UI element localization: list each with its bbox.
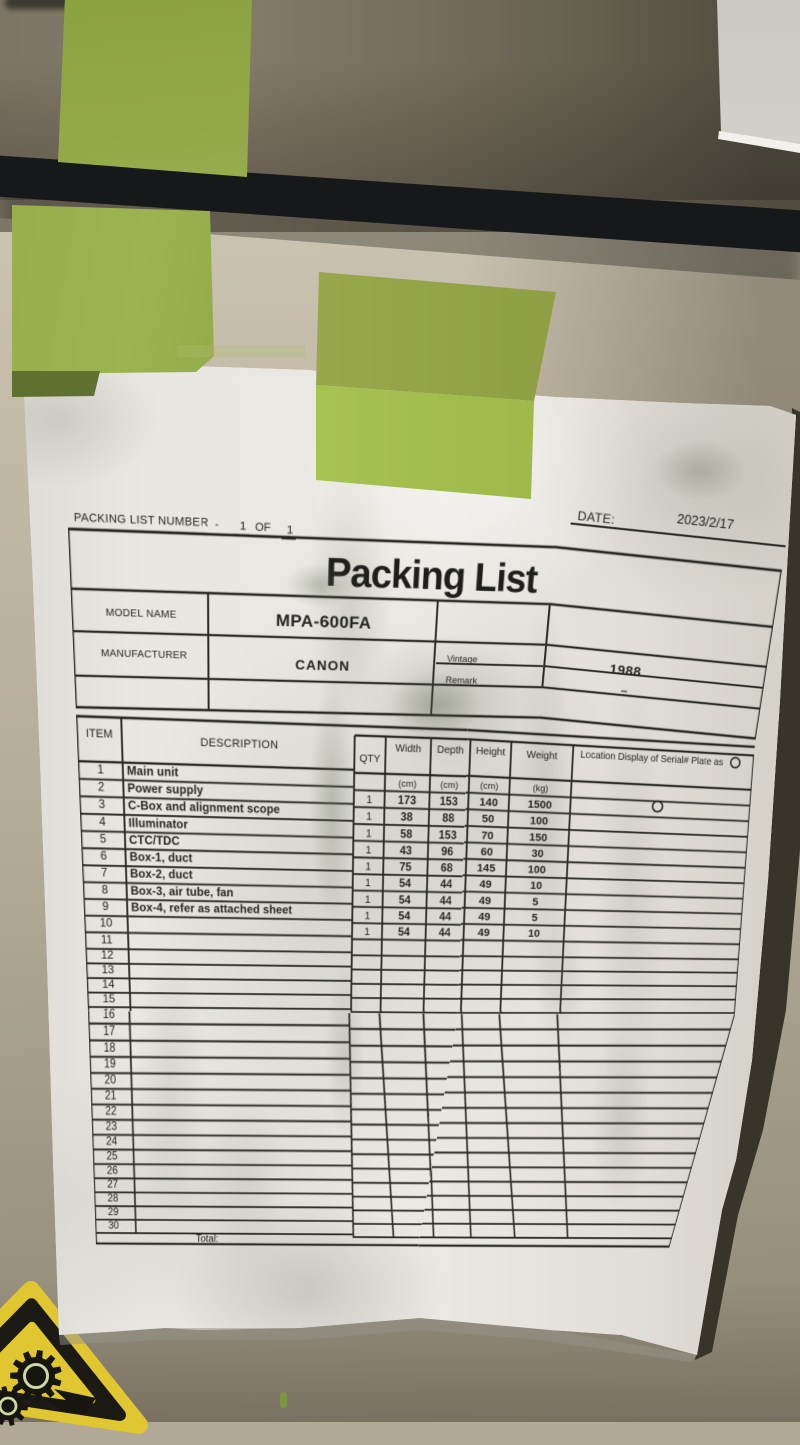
svg-text:CANON: CANON (295, 658, 350, 675)
svg-text:8: 8 (101, 882, 108, 896)
svg-text:5: 5 (532, 896, 539, 908)
svg-text:7: 7 (101, 866, 108, 880)
svg-text:Vintage: Vintage (447, 654, 478, 665)
svg-text:-: - (215, 517, 219, 531)
svg-text:96: 96 (441, 844, 454, 858)
svg-text:88: 88 (442, 811, 455, 825)
svg-text:173: 173 (398, 793, 417, 807)
svg-text:Box-1, duct: Box-1, duct (129, 850, 192, 865)
svg-text:60: 60 (480, 846, 493, 859)
svg-text:1: 1 (240, 519, 247, 533)
svg-text:150: 150 (529, 831, 548, 844)
svg-text:23: 23 (105, 1120, 117, 1133)
svg-text:4: 4 (99, 814, 106, 828)
svg-text:13: 13 (101, 963, 114, 976)
svg-text:11: 11 (101, 932, 113, 945)
svg-text:QTY: QTY (359, 752, 381, 765)
svg-text:MPA-600FA: MPA-600FA (276, 611, 372, 633)
svg-text:MANUFACTURER: MANUFACTURER (101, 648, 188, 661)
svg-text:Height: Height (476, 744, 506, 758)
svg-text:(cm): (cm) (398, 779, 417, 790)
svg-text:Packing List: Packing List (325, 549, 540, 601)
svg-text:140: 140 (479, 796, 498, 810)
svg-text:CTC/TDC: CTC/TDC (129, 833, 180, 848)
svg-text:10: 10 (530, 880, 543, 893)
svg-text:1988: 1988 (609, 663, 642, 680)
svg-text:9: 9 (102, 899, 109, 912)
svg-text:1: 1 (365, 893, 371, 905)
svg-text:Remark: Remark (445, 676, 478, 687)
svg-text:30: 30 (108, 1220, 119, 1232)
svg-text:54: 54 (399, 876, 412, 889)
svg-text:20: 20 (104, 1073, 116, 1087)
svg-text:17: 17 (103, 1023, 115, 1038)
svg-text:6: 6 (100, 849, 107, 863)
svg-text:2: 2 (98, 779, 105, 793)
svg-text:(cm): (cm) (440, 780, 458, 791)
svg-text:10: 10 (100, 916, 113, 929)
svg-text:3: 3 (98, 797, 105, 811)
svg-text:5: 5 (100, 831, 107, 845)
svg-text:19: 19 (104, 1057, 116, 1071)
svg-text:58: 58 (400, 827, 413, 841)
svg-text:27: 27 (107, 1178, 118, 1190)
svg-text:ITEM: ITEM (86, 726, 113, 740)
svg-text:DESCRIPTION: DESCRIPTION (200, 735, 278, 751)
svg-text:1: 1 (365, 843, 371, 856)
svg-text:Width: Width (395, 742, 421, 755)
svg-text:54: 54 (399, 893, 412, 906)
svg-text:1: 1 (366, 810, 372, 823)
svg-text:29: 29 (108, 1206, 119, 1218)
svg-text:44: 44 (440, 894, 453, 907)
svg-text:Main unit: Main unit (127, 763, 179, 779)
svg-text:44: 44 (439, 910, 451, 923)
svg-text:Depth: Depth (437, 743, 464, 756)
svg-text:43: 43 (400, 843, 413, 857)
svg-text:50: 50 (482, 813, 495, 826)
svg-text:49: 49 (477, 927, 490, 939)
svg-text:5: 5 (531, 912, 538, 924)
svg-text:22: 22 (105, 1104, 117, 1117)
svg-text:Box-3, air tube, fan: Box-3, air tube, fan (130, 884, 233, 899)
svg-text:54: 54 (398, 909, 410, 922)
svg-text:18: 18 (103, 1040, 115, 1054)
svg-text:1: 1 (364, 909, 370, 921)
svg-text:24: 24 (106, 1135, 117, 1148)
svg-text:26: 26 (107, 1164, 118, 1176)
svg-text:1: 1 (97, 762, 104, 776)
svg-text:PACKING LIST NUMBER: PACKING LIST NUMBER (74, 510, 209, 529)
svg-text:Weight: Weight (526, 748, 558, 762)
svg-text:30: 30 (531, 847, 544, 860)
svg-text:70: 70 (481, 829, 494, 842)
svg-text:1: 1 (366, 827, 372, 840)
svg-text:OF: OF (255, 520, 271, 534)
svg-text:153: 153 (440, 794, 459, 808)
svg-text:49: 49 (478, 911, 491, 924)
svg-text:Power supply: Power supply (127, 781, 203, 797)
svg-text:(cm): (cm) (480, 780, 499, 792)
svg-text:12: 12 (101, 948, 114, 961)
svg-text:44: 44 (440, 877, 453, 890)
svg-text:68: 68 (441, 861, 454, 874)
svg-text:1: 1 (287, 523, 294, 537)
svg-text:10: 10 (528, 928, 540, 940)
svg-text:2023/2/17: 2023/2/17 (676, 512, 735, 532)
svg-text:(kg): (kg) (533, 782, 549, 794)
svg-text:153: 153 (439, 828, 458, 842)
svg-text:1500: 1500 (527, 798, 552, 812)
svg-text:C-Box and alignment scope: C-Box and alignment scope (128, 798, 280, 816)
svg-text:49: 49 (479, 895, 492, 908)
svg-text:100: 100 (530, 815, 549, 828)
svg-text:1: 1 (364, 925, 370, 937)
svg-text:28: 28 (107, 1192, 118, 1204)
svg-text:54: 54 (398, 925, 410, 938)
svg-text:145: 145 (477, 862, 496, 875)
svg-text:1: 1 (366, 793, 372, 806)
svg-text:1: 1 (365, 860, 371, 873)
svg-text:21: 21 (105, 1089, 117, 1103)
svg-text:Illuminator: Illuminator (128, 815, 188, 830)
svg-text:1: 1 (365, 877, 371, 889)
svg-text:49: 49 (479, 878, 492, 891)
svg-text:Box-4, refer as attached sheet: Box-4, refer as attached sheet (131, 900, 292, 916)
svg-text:75: 75 (399, 860, 412, 873)
svg-text:14: 14 (102, 977, 115, 990)
svg-text:38: 38 (400, 810, 413, 824)
svg-text:Box-2, duct: Box-2, duct (130, 867, 193, 882)
svg-text:100: 100 (528, 864, 547, 877)
svg-text:25: 25 (106, 1149, 117, 1162)
svg-text:Total:: Total: (196, 1233, 219, 1244)
svg-text:44: 44 (439, 926, 451, 939)
svg-text:MODEL NAME: MODEL NAME (105, 607, 176, 621)
svg-text:15: 15 (102, 992, 115, 1005)
